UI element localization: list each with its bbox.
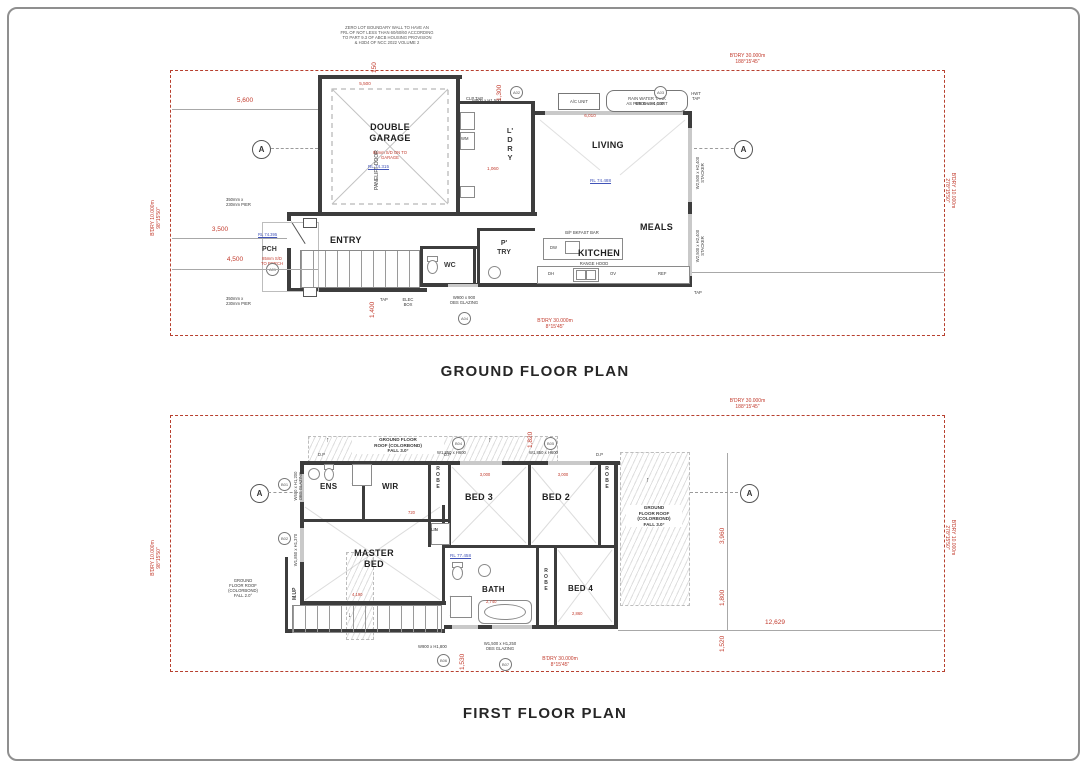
window-size-label: W1,850 x H1,370 <box>293 528 298 572</box>
tap-label: TAP <box>380 297 388 302</box>
window-tag-b02: B02 <box>278 532 291 545</box>
room-label-linen: LIN <box>431 527 438 532</box>
window-band <box>548 461 590 465</box>
pier <box>303 287 317 297</box>
dim-line <box>172 269 318 270</box>
dim-150: 150 <box>371 57 379 73</box>
dim-1530: 1,530 <box>459 646 467 670</box>
shower <box>352 464 372 486</box>
range-hood-label: RANGE HOOD <box>574 261 614 266</box>
dim-1800: 1,800 <box>719 582 727 606</box>
gf-boundary-right-label: B'DRY 10.000m 278°15'50" <box>944 128 956 253</box>
living-rl-level: RL 74.488 <box>590 178 611 184</box>
garage-stepdown-note: 85mm S/D ON TO GARAGE <box>355 150 425 160</box>
stacker-door-band <box>688 128 692 202</box>
ff-plan-title: FIRST FLOOR PLAN <box>450 705 640 722</box>
bathtub-basin <box>484 604 526 620</box>
zero-lot-wall-note: ZERO LOT BOUNDARY WALL TO HAVE AN FRL OF… <box>326 25 448 46</box>
window-tag-b04: B04 <box>452 437 465 450</box>
cooktop-burner <box>576 270 586 280</box>
wall <box>442 505 445 603</box>
wall <box>287 212 537 216</box>
dim-2860: 2,860 <box>572 611 582 616</box>
wall <box>477 228 535 231</box>
dim-4500: 4,500 <box>205 256 265 264</box>
wall <box>444 545 618 548</box>
section-line <box>271 148 318 149</box>
room-label-robe: R O B E <box>541 568 551 592</box>
dim-1400: 1,400 <box>369 296 377 318</box>
window-size-label: W1,850 x H600 <box>437 450 466 455</box>
window-size-label: W1,500 x H1,250 OBS GLAZING <box>478 641 522 651</box>
toilet <box>427 260 438 274</box>
section-line <box>268 492 298 493</box>
roof-fall-arrow-up: ↑ <box>646 477 650 486</box>
gf-boundary-top-label: B'DRY 30.000m 188°15'45" <box>690 53 805 65</box>
ff-boundary-top-label: B'DRY 30.000m 188°15'45" <box>690 398 805 410</box>
room-label-bed3: BED 3 <box>465 492 493 503</box>
room-label-ensuite: ENS <box>320 482 337 492</box>
dim-3500: 3,500 <box>195 226 245 234</box>
cupboard <box>460 186 475 198</box>
roof-note-right: GROUND FLOOR ROOF (COLORBOND) FALL 3.0° <box>626 505 682 527</box>
window-size-label: W600 x H1,200 OBS GLAZING <box>293 460 303 512</box>
pier-note: 350mm x 230mm PIER <box>226 197 266 207</box>
room-label-porch: PCH <box>262 246 277 255</box>
gf-staircase <box>300 250 420 288</box>
window-band <box>448 284 478 287</box>
cooktop-burner <box>586 270 596 280</box>
room-label-wc: WC <box>444 262 456 271</box>
window-band <box>452 625 478 629</box>
witness-line <box>618 630 942 631</box>
room-label-wir: WIR <box>382 482 398 492</box>
dim-5600: 5,600 <box>215 97 275 105</box>
dim-1520: 1,520 <box>719 628 727 652</box>
section-marker-a: A <box>734 140 753 159</box>
ff-staircase <box>292 605 442 633</box>
toilet <box>324 468 334 481</box>
dim-6010: 6,010 <box>570 113 610 119</box>
wall <box>318 75 322 216</box>
gf-boundary-bottom-label: B'DRY 30.000m 8°15'45" <box>500 318 610 330</box>
window-size-label: W1,850 x H600 <box>529 450 558 455</box>
laundry-trough <box>460 112 475 130</box>
tap-label: TAP <box>694 290 702 295</box>
shower <box>450 596 472 618</box>
room-label-bed4: BED 4 <box>568 584 593 594</box>
wall <box>528 461 531 547</box>
ff-rl-level: RL 77.458 <box>450 553 471 559</box>
appliance-label-dh: DH <box>548 271 554 276</box>
drawing-sheet: B'DRY 30.000m 188°15'45" B'DRY 30.000m 8… <box>0 0 1087 768</box>
porch-rl-level: RL 74.395 <box>258 232 277 237</box>
dim-line <box>172 238 287 239</box>
basin <box>488 266 501 279</box>
roof-fall-arrow-up: ↑ <box>488 437 492 446</box>
roof-area-right <box>620 452 690 606</box>
dim-12629: 12,629 <box>745 619 805 627</box>
window-tag-b05: B05 <box>544 437 557 450</box>
room-label-living: LIVING <box>592 140 624 151</box>
downpipe-label: D.P <box>596 452 603 457</box>
dim-1060: 1,060 <box>487 166 499 172</box>
pier-note: 350mm x 230mm PIER <box>226 296 266 306</box>
room-label-laundry: L' D R Y <box>504 126 516 163</box>
window-tag-b07: B07 <box>499 658 512 671</box>
gf-boundary-left-label: B'DRY 10.000m 98°15'50" <box>150 158 162 278</box>
section-line <box>690 492 738 493</box>
wall <box>598 461 601 547</box>
window-tag-b06: B06 <box>437 654 450 667</box>
room-label-garage: DOUBLE GARAGE <box>360 122 420 144</box>
wall <box>285 557 288 633</box>
wall <box>531 101 535 216</box>
dim-3000: 3,000 <box>470 472 500 477</box>
dim-line-vertical <box>727 453 728 630</box>
washing-machine-label: WM <box>461 136 468 141</box>
section-marker-a: A <box>740 484 759 503</box>
ff-boundary-right-label: B'DRY 10.000m 278°15'50" <box>944 475 956 600</box>
downpipe-label: D.P <box>318 452 325 457</box>
dishwasher-label: DW <box>550 245 557 250</box>
gf-plan-title: GROUND FLOOR PLAN <box>440 363 630 380</box>
section-marker-a: A <box>252 140 271 159</box>
stacker-door-label: W2,500 x H2,400 STACKER <box>695 144 705 202</box>
dim-3960: 3,960 <box>719 518 727 544</box>
pier <box>303 218 317 228</box>
elec-box-label: ELEC BOX <box>398 297 418 307</box>
panelift-door-label: PANELIFT DOOR <box>374 132 380 190</box>
room-label-robe: R O B E <box>433 466 443 490</box>
window-size-label: W600 x H1,500 <box>635 101 664 106</box>
oven-label: OV <box>610 271 616 276</box>
dim-4190: 4,190 <box>352 592 362 597</box>
room-label-robe: R O B E <box>602 466 612 490</box>
wall <box>536 548 539 627</box>
toilet <box>452 566 463 580</box>
ff-boundary-bottom-label: B'DRY 30.000m 8°15'45" <box>505 656 615 668</box>
roof-fall-arrow-up: ↑ <box>326 437 330 446</box>
window-tag-a02: A02 <box>510 86 523 99</box>
witness-line <box>692 272 944 273</box>
dim-line <box>172 109 318 110</box>
window-band <box>300 528 304 562</box>
room-label-kitchen: KITCHEN <box>578 248 620 259</box>
dim-5500: 5,500 <box>345 81 385 87</box>
room-label-bath: BATH <box>482 585 505 595</box>
room-label-pantry: P' TRY <box>492 240 516 257</box>
hwt-tap-label: HWT TAP <box>688 91 704 101</box>
room-label-bed2: BED 2 <box>542 492 570 503</box>
room-label-master-bed: MASTER BED <box>348 548 400 570</box>
dim-1820: 1,820 <box>527 424 535 448</box>
fridge-label: REF <box>658 271 666 276</box>
section-line <box>694 148 734 149</box>
dim-2740: 2,740 <box>486 599 496 604</box>
ac-unit-box: A/C UNIT <box>558 93 600 110</box>
basin <box>308 468 320 480</box>
wall <box>477 228 480 286</box>
obscure-glazing-label: W900 x 900 OBS GLAZING <box>436 295 492 305</box>
dim-3000: 3,000 <box>548 472 578 477</box>
room-label-meals: MEALS <box>640 222 673 233</box>
dim-1300: 1,300 <box>496 79 504 101</box>
dim-720: 720 <box>408 510 415 515</box>
window-tag-a04: A04 <box>458 312 471 325</box>
roof-note-left: GROUND FLOOR ROOF (COLORBOND) FALL 2.0° <box>220 578 266 599</box>
window-tag-b01: B01 <box>278 478 291 491</box>
basin <box>478 564 491 577</box>
wall <box>554 548 557 627</box>
stacker-door-label: W2,500 x H2,400 STACKER <box>695 217 705 275</box>
wall <box>420 246 478 249</box>
room-label-entry: ENTRY <box>330 235 362 246</box>
breakfast-bar-label: B/F BKFAST BAR <box>550 230 614 235</box>
window-tag-a03: A03 <box>654 86 667 99</box>
window-band <box>492 625 532 629</box>
window-size-label: W900 x H1,800 <box>418 644 447 649</box>
ff-boundary-left-label: B'DRY 10.000m 98°15'50" <box>150 498 162 618</box>
roof-note-top: GROUND FLOOR ROOF (COLORBOND) FALL 3.0° <box>352 437 444 454</box>
wall <box>318 75 462 79</box>
window-band <box>460 461 502 465</box>
section-marker-a: A <box>250 484 269 503</box>
wall <box>420 246 423 287</box>
wall <box>473 246 476 287</box>
